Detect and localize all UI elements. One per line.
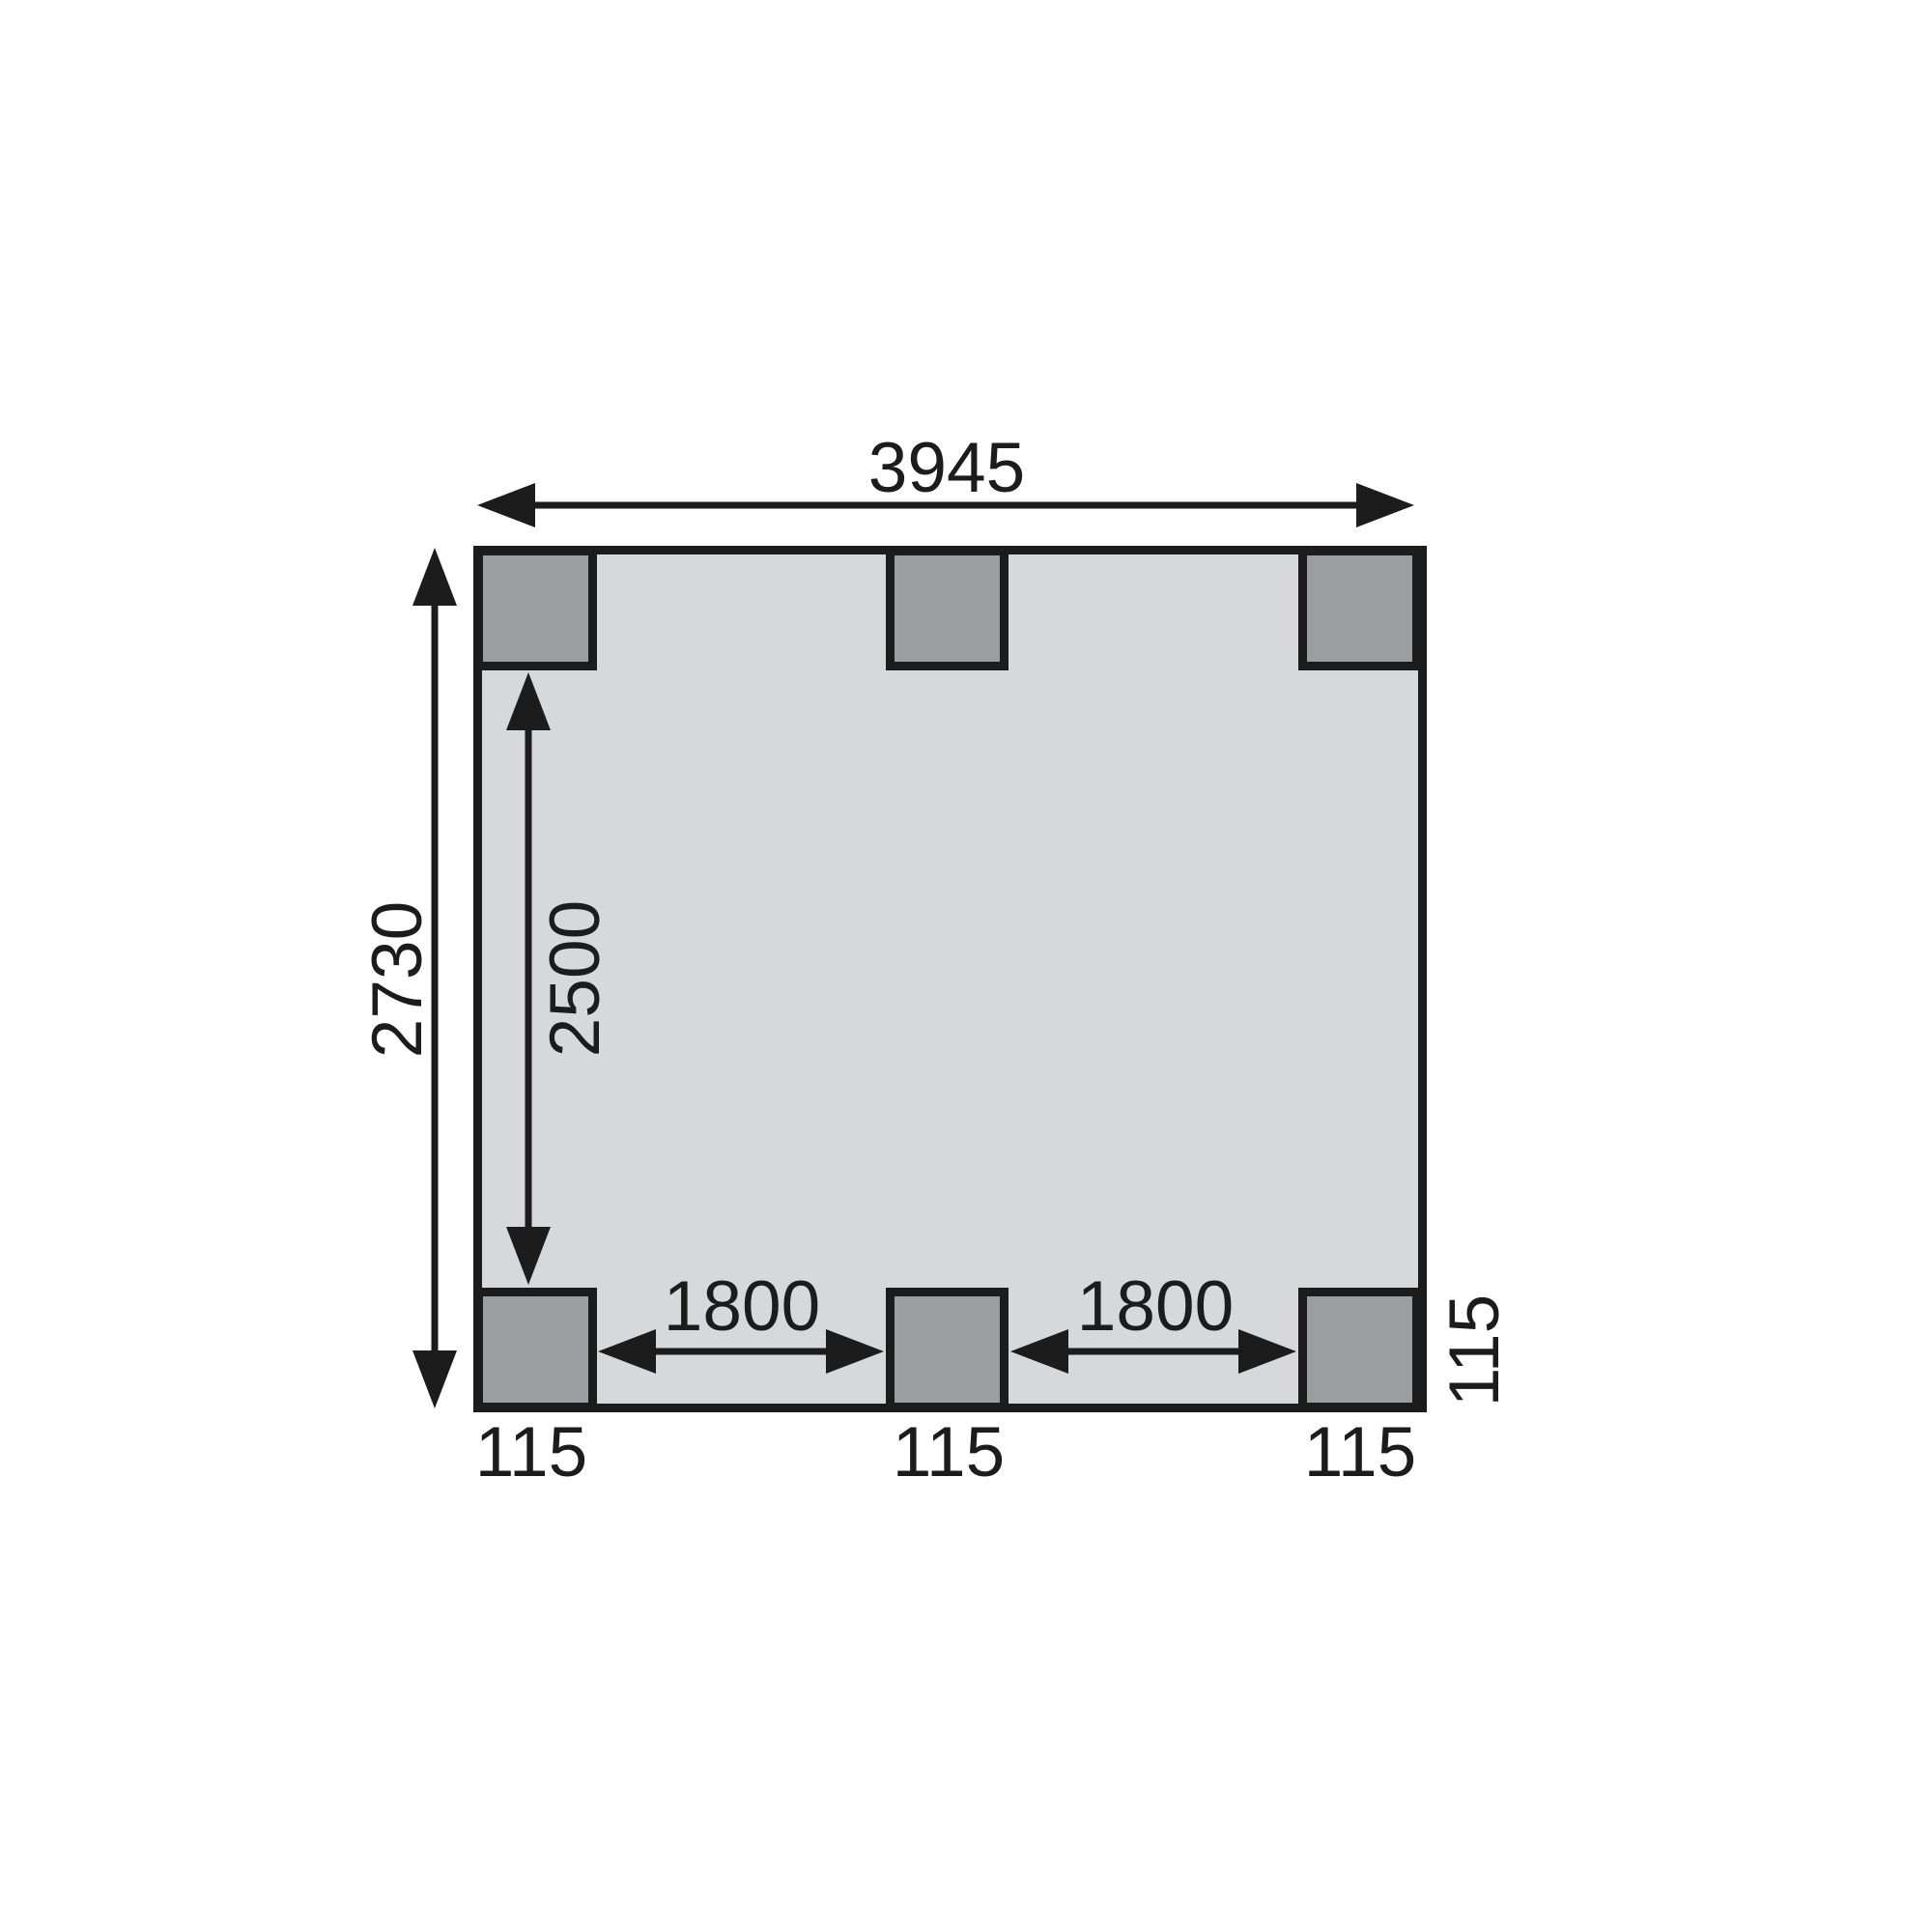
- svg-text:1800: 1800: [664, 1267, 820, 1346]
- svg-text:2730: 2730: [358, 901, 437, 1058]
- svg-text:1800: 1800: [1077, 1267, 1234, 1346]
- svg-text:115: 115: [893, 1413, 1005, 1492]
- svg-text:2500: 2500: [536, 900, 614, 1057]
- svg-text:115: 115: [1304, 1413, 1416, 1492]
- svg-text:115: 115: [1435, 1294, 1514, 1406]
- svg-text:115: 115: [475, 1413, 587, 1492]
- svg-text:3945: 3945: [868, 429, 1025, 507]
